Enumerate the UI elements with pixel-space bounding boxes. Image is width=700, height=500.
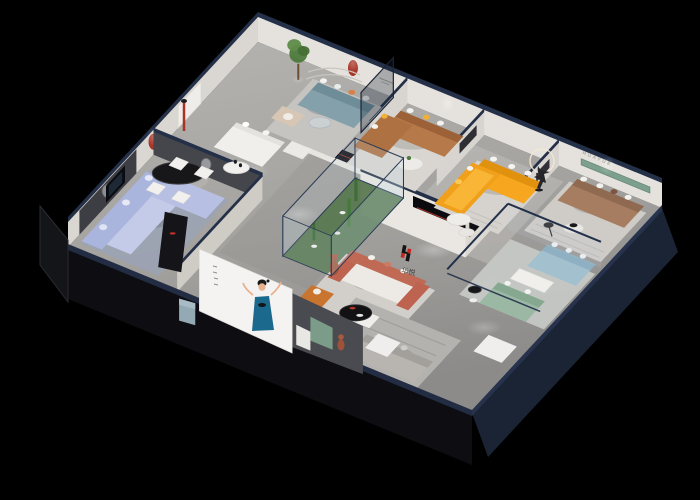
pillow <box>263 130 270 135</box>
pillow-salmon <box>384 262 391 267</box>
nesting-table-white <box>447 213 471 225</box>
pillow <box>508 164 515 169</box>
pillow <box>368 255 375 260</box>
poster-girl-belt <box>258 303 266 307</box>
round-stool-white <box>469 298 477 302</box>
coffee-table-nook <box>223 162 249 174</box>
poster-girl-bun <box>267 280 270 283</box>
pillow <box>525 289 531 294</box>
wall-spot-glow <box>346 54 360 72</box>
armchair-tan-cushion <box>283 113 293 120</box>
armchair-cushion-white <box>313 289 321 295</box>
poster-girl-head <box>258 283 265 291</box>
pillow <box>242 122 249 127</box>
pillow <box>145 175 153 181</box>
pillow-yellow <box>423 115 430 120</box>
pillow-yellow <box>381 114 387 119</box>
pillow-orange <box>348 90 355 95</box>
left-corner-cut-wall <box>40 206 68 302</box>
pillow <box>372 124 378 129</box>
pillow <box>596 183 603 188</box>
floorplan-canvas: 华悦 HUAYUE <box>0 0 700 500</box>
console-red-accent <box>170 232 176 234</box>
pillow <box>334 84 341 89</box>
table-plant <box>407 156 411 160</box>
wall-spot-glow <box>441 94 455 112</box>
pillow <box>437 121 444 126</box>
pillow <box>320 78 327 83</box>
coffee-table-glass <box>309 117 331 128</box>
pillow <box>467 166 473 171</box>
scene-layer <box>40 12 678 465</box>
floor-spotlight <box>466 319 502 335</box>
sculpture-base <box>535 189 543 192</box>
nesting-table-white <box>458 228 474 236</box>
pillow <box>504 281 510 286</box>
red-floor-lamp-head <box>181 99 187 103</box>
pillow <box>524 171 531 176</box>
pillow <box>122 200 130 206</box>
table-vase-black <box>239 163 242 167</box>
table-deco-red <box>350 307 356 310</box>
pillow <box>407 108 414 113</box>
pillow <box>490 157 497 162</box>
table-tray-black <box>570 223 578 227</box>
pillow-glow <box>455 179 462 184</box>
atrium-sneaker <box>340 211 346 214</box>
pillow <box>99 224 107 230</box>
pillow-brown <box>611 189 618 194</box>
pillow <box>625 195 632 200</box>
teddy-bear-head <box>338 334 344 340</box>
cushion-grey <box>401 345 408 350</box>
pillow <box>580 177 587 182</box>
showroom-floorplan-render: 华悦 HUAYUE <box>0 0 700 500</box>
table-vase-black <box>234 160 237 164</box>
table-book-white <box>356 314 363 317</box>
teddy-bear-body <box>338 340 345 351</box>
tree-foliage <box>298 46 310 56</box>
